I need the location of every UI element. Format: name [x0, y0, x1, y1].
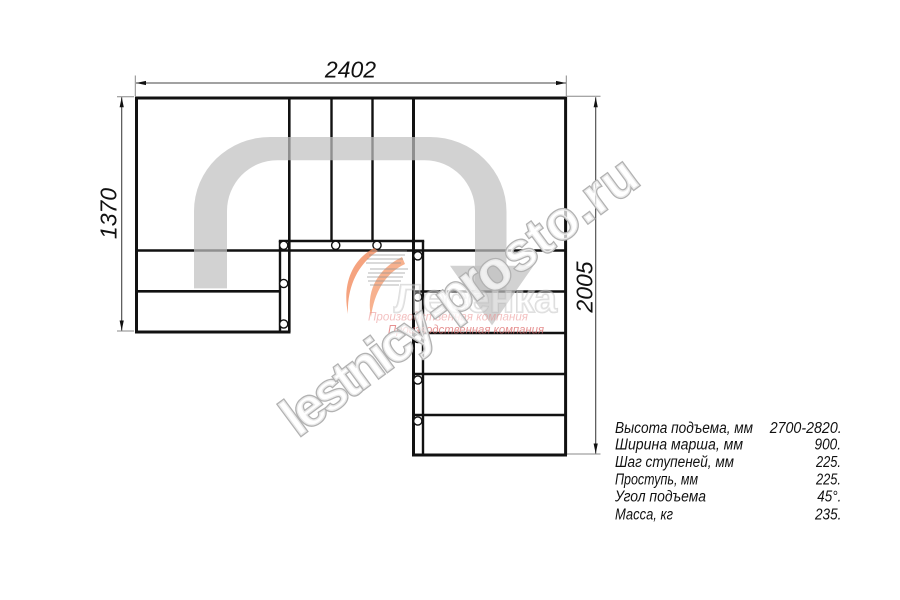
svg-text:Проступь, мм: Проступь, мм — [615, 471, 698, 488]
svg-text:225.: 225. — [815, 454, 841, 471]
svg-text:Шаг ступеней, мм: Шаг ступеней, мм — [615, 454, 734, 471]
svg-text:2402: 2402 — [324, 57, 376, 83]
svg-text:Масса, кг: Масса, кг — [615, 506, 673, 523]
svg-text:900.: 900. — [815, 437, 842, 454]
svg-text:Ширина марша, мм: Ширина марша, мм — [615, 437, 743, 454]
svg-text:2700-2820.: 2700-2820. — [769, 420, 842, 437]
svg-text:1370: 1370 — [96, 188, 122, 239]
svg-text:225.: 225. — [815, 471, 841, 488]
svg-text:45°.: 45°. — [817, 488, 841, 505]
svg-text:2005: 2005 — [572, 261, 598, 313]
svg-text:Угол подъема: Угол подъема — [614, 488, 706, 505]
svg-text:235.: 235. — [814, 506, 841, 523]
svg-text:Высота подъема, мм: Высота подъема, мм — [615, 420, 753, 437]
